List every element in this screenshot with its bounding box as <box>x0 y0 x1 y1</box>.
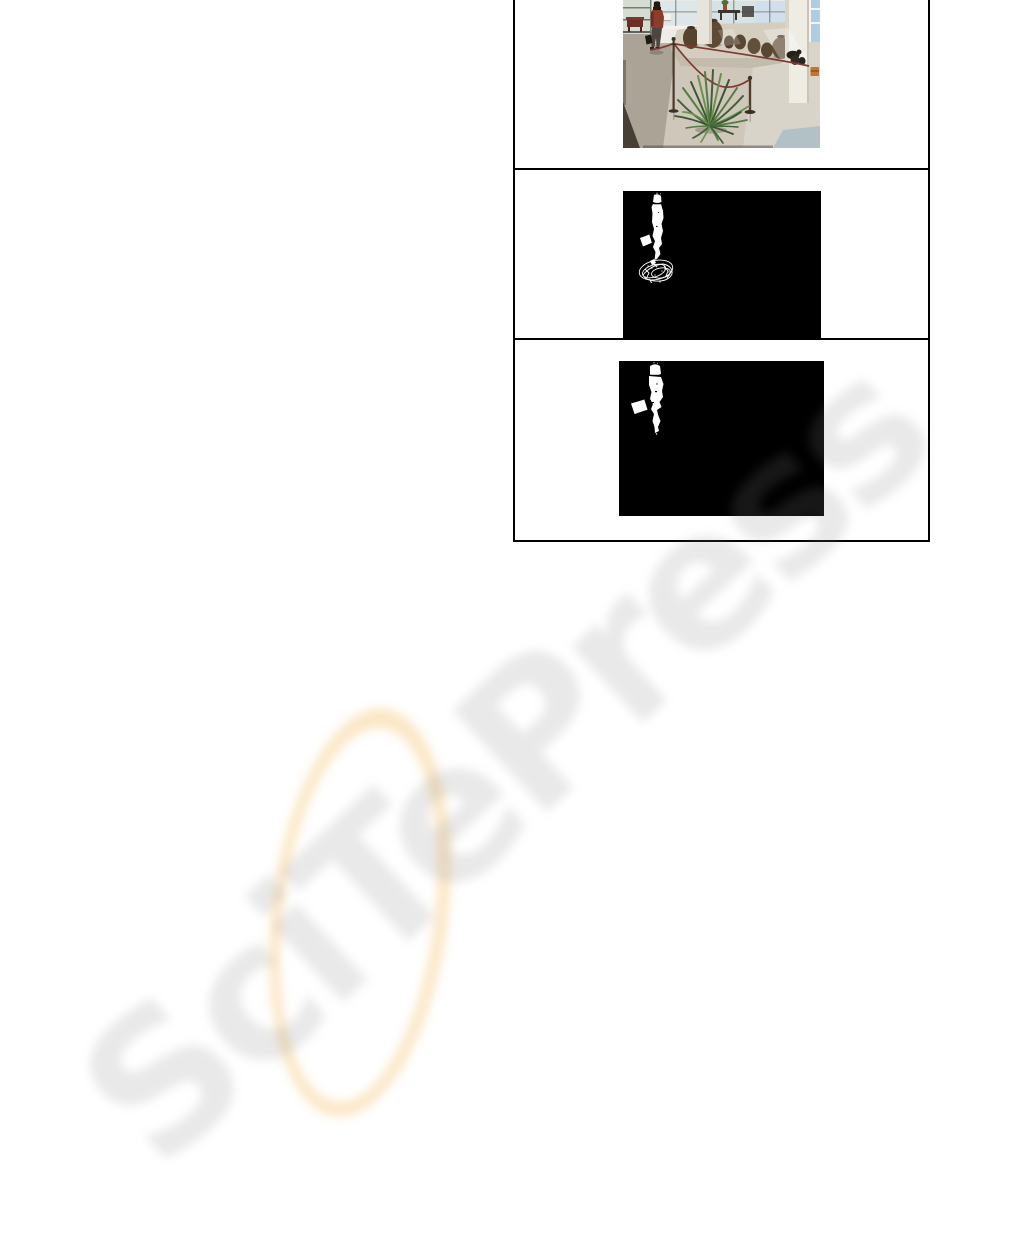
lobby-photo-image <box>623 0 820 148</box>
figure-panel-original-frame <box>515 0 928 170</box>
foreground-mask-image <box>623 191 821 339</box>
watermark-text: SciTePress <box>37 316 972 1210</box>
paper-page: SciTePress <box>0 0 1012 1253</box>
figure-panel-foreground-mask <box>515 170 928 340</box>
